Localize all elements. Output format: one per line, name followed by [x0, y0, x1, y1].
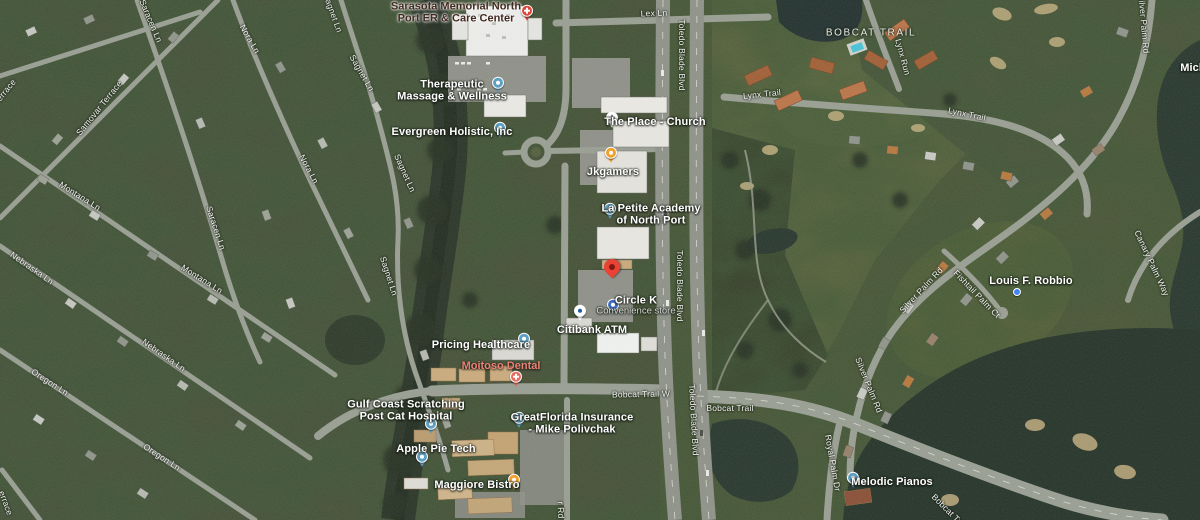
poi-label-moitoso-dental[interactable]: Moitoso Dental [462, 360, 541, 372]
road-label-toledo-blade-blvd: Toledo Blade Blvd [687, 384, 701, 456]
poi-label-text: GreatFlorida Insurance [511, 412, 634, 424]
road-label-lynx-trail: Lynx Trail [743, 87, 782, 101]
poi-sublabel-text: Convenience store [596, 307, 675, 318]
poi-label-text: Massage & Wellness [397, 91, 507, 103]
poi-label-text: - Mike Polivchak [511, 424, 634, 436]
poi-label-text: Apple Pie Tech [396, 443, 475, 455]
poi-label-gulf-coast-cat-hospital[interactable]: Gulf Coast ScratchingPost Cat Hospital [347, 399, 465, 424]
poi-label-pricing-healthcare[interactable]: Pricing Healthcare [432, 339, 530, 351]
poi-label-text: Maggiore Bistro [434, 479, 519, 491]
road-label-montana-ln: Montana Ln [179, 262, 224, 295]
road-label-errace: errace [0, 489, 15, 516]
road-label-toledo-blade-blvd: Toledo Blade Blvd [677, 19, 687, 90]
poi-label-sarasota-memorial-er[interactable]: Sarasota Memorial NorthPort ER & Care Ce… [391, 1, 521, 26]
locality-label-bobcat-trail-community: BOBCAT TRAIL [826, 27, 916, 38]
map-labels-layer: Sarasota Memorial NorthPort ER & Care Ce… [0, 0, 1200, 520]
road-label-lynx-trail: Lynx Trail [947, 105, 986, 123]
road-label-r-rd: r Rd [556, 501, 567, 518]
poi-label-la-petite-academy[interactable]: La Petite Academyof North Port [601, 203, 700, 228]
road-label-bobcat-trail-w: Bobcat Trail W [612, 388, 670, 399]
road-label-saracen-ln: Saracen Ln [138, 0, 165, 44]
poi-label-text: Therapeutic [397, 79, 507, 91]
road-label-bobcat-trail: Bobcat Trail [930, 492, 971, 520]
food-pin-icon[interactable] [605, 147, 617, 163]
road-label-silver-palm-rd: Silver Palm Rd [1136, 0, 1151, 54]
road-label-errace: errace [0, 77, 18, 103]
hospital-pin-icon[interactable] [521, 5, 533, 21]
poi-label-text: La Petite Academy [601, 203, 700, 215]
road-label-nora-ln: Nora Ln [238, 23, 262, 55]
poi-label-text: Citibank ATM [557, 324, 627, 336]
poi-label-the-place-church[interactable]: The Place - Church [604, 116, 705, 128]
poi-label-maggiore-bistro[interactable]: Maggiore Bistro [434, 479, 519, 491]
road-label-nora-ln: Nora Ln [297, 153, 321, 186]
road-label-toledo-blade-blvd: Toledo Blade Blvd [675, 250, 685, 321]
health-pin-icon[interactable] [510, 371, 522, 387]
poi-label-circle-k[interactable]: Circle KConvenience store [596, 295, 675, 318]
louis-f-robbio-pin-icon[interactable] [1013, 288, 1021, 296]
road-label-canary-palm-way: Canary Palm Way [1132, 229, 1171, 298]
poi-label-text: Moitoso Dental [462, 360, 541, 372]
citibank-pin-icon[interactable] [574, 305, 586, 321]
red-map-pin-icon[interactable] [601, 256, 624, 279]
road-label-nebraska-ln: Nebraska Ln [8, 249, 55, 286]
poi-label-text: Mich [1180, 62, 1200, 74]
poi-label-citibank-atm[interactable]: Citibank ATM [557, 324, 627, 336]
road-label-sagnet-ln: Sagnet Ln [378, 255, 400, 297]
road-label-samovar-terrace: Samovar Terrace [74, 79, 124, 138]
poi-label-text: Louis F. Robbio [989, 275, 1072, 287]
poi-label-text: Sarasota Memorial North [391, 1, 521, 13]
road-label-sagnet-ln: Sagnet Ln [321, 0, 344, 34]
road-label-montana-ln: Montana Ln [57, 179, 102, 212]
road-label-oregon-ln: Oregon Ln [30, 366, 71, 397]
road-label-silver-palm-rd: Silver Palm Rd [897, 265, 945, 315]
road-label-lex-ln: Lex Ln [640, 8, 667, 19]
poi-label-text: Pricing Healthcare [432, 339, 530, 351]
poi-label-text: of North Port [601, 215, 700, 227]
poi-label-greatflorida-insurance[interactable]: GreatFlorida Insurance- Mike Polivchak [511, 412, 634, 437]
poi-label-text: Jkgamers [587, 166, 639, 178]
poi-label-louis-f-robbio[interactable]: Louis F. Robbio [989, 275, 1072, 287]
poi-label-text: Evergreen Holistic, Inc [392, 126, 513, 138]
road-label-oregon-ln: Oregon Ln [142, 441, 183, 472]
poi-label-evergreen-holistic[interactable]: Evergreen Holistic, Inc [392, 126, 513, 138]
poi-label-melodic-pianos[interactable]: Melodic Pianos [851, 476, 932, 488]
road-label-sagnet-ln: Sagnet Ln [348, 53, 377, 93]
road-label-nebraska-ln: Nebraska Ln [140, 336, 187, 373]
road-label-saracen-ln: Saracen Ln [204, 205, 228, 251]
poi-label-mich-partial[interactable]: Mich [1180, 62, 1200, 74]
road-label-bobcat-trail: Bobcat Trail [706, 403, 753, 413]
road-label-lynx-run: Lynx Run [893, 38, 912, 77]
poi-label-text: The Place - Church [604, 116, 705, 128]
poi-label-apple-pie-tech[interactable]: Apple Pie Tech [396, 443, 475, 455]
road-label-silver-palm-rd: Silver Palm Rd [853, 356, 884, 414]
poi-label-text: Port ER & Care Center [391, 13, 521, 25]
poi-label-text: Melodic Pianos [851, 476, 932, 488]
road-label-royal-palm-dr: Royal Palm Dr [823, 434, 843, 492]
poi-label-jkgamers[interactable]: Jkgamers [587, 166, 639, 178]
road-label-sagnet-ln: Sagnet Ln [392, 152, 418, 193]
map-canvas[interactable]: Sarasota Memorial NorthPort ER & Care Ce… [0, 0, 1200, 520]
poi-label-text: Post Cat Hospital [347, 411, 465, 423]
poi-label-therapeutic-massage-wellness[interactable]: TherapeuticMassage & Wellness [397, 79, 507, 104]
poi-label-text: Gulf Coast Scratching [347, 399, 465, 411]
